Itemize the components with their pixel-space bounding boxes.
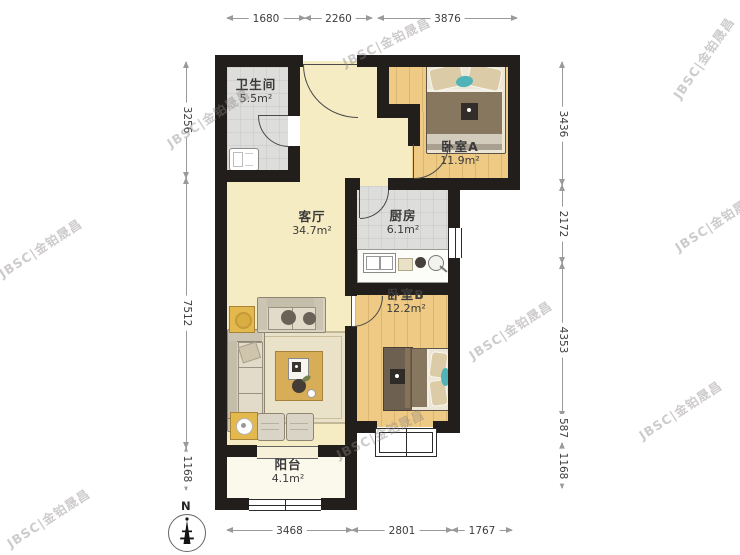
- watermark: JBSC|金铂晟昌: [668, 13, 739, 102]
- room-name: 客厅: [292, 210, 332, 224]
- kitchen-counter: [357, 249, 450, 283]
- seat-cushion: [238, 367, 263, 395]
- living-room-label: 客厅 34.7m²: [292, 210, 332, 238]
- bay-window: [375, 428, 437, 457]
- room-area: 11.9m²: [440, 155, 480, 168]
- dim-left-3: 1168: [180, 448, 193, 490]
- dim-top-3: 3876: [378, 12, 517, 25]
- watermark: JBSC|金铂晟昌: [635, 375, 726, 443]
- wall-segment: [448, 295, 460, 433]
- room-area: 5.5m²: [236, 93, 277, 106]
- wall-segment: [318, 445, 357, 457]
- bathtub: [229, 148, 259, 171]
- wardrobe: [383, 347, 413, 411]
- cutting-board: [398, 258, 413, 271]
- compass-north-label: N: [181, 499, 191, 513]
- room-name: 卧室A: [440, 140, 480, 154]
- bedroom-a-label: 卧室A 11.9m²: [440, 140, 480, 168]
- dim-bottom-2: 2801: [352, 524, 452, 537]
- room-name: 卫生间: [236, 78, 277, 92]
- dim-bottom-1: 3468: [227, 524, 352, 537]
- kitchen-label: 厨房 6.1m²: [387, 209, 420, 237]
- watermark: JBSC|金铂晟昌: [0, 213, 85, 281]
- watermark: JBSC|金铂晟昌: [671, 187, 740, 255]
- wall-segment: [215, 498, 249, 510]
- room-area: 6.1m²: [387, 224, 420, 237]
- stool: [286, 413, 314, 441]
- wall-segment: [288, 55, 300, 116]
- bedroom-a-door-leaf: [413, 144, 414, 178]
- coffee-table: [275, 351, 323, 401]
- wall-segment: [215, 445, 257, 457]
- watermark: JBSC|金铂晟昌: [465, 295, 556, 363]
- loveseat: [257, 297, 326, 333]
- dim-right-1: 3436: [556, 62, 569, 185]
- balcony-label: 阳台 4.1m²: [272, 458, 305, 486]
- tower-icon: [169, 515, 205, 551]
- room-area: 12.2m²: [386, 303, 426, 316]
- entry-door-leaf: [303, 64, 357, 65]
- floorplan: 卫生间 5.5m² 卧室A 11.9m² 客厅 34.7m² 厨房 6.1m² …: [0, 0, 740, 555]
- dim-right-3: 4353: [556, 263, 569, 417]
- side-table: [229, 306, 255, 333]
- dim-left-2: 7512: [180, 178, 193, 448]
- dim-top-2: 2260: [305, 12, 372, 25]
- dim-right-5: 1168: [556, 443, 569, 488]
- wall-segment: [448, 183, 460, 228]
- room-area: 4.1m²: [272, 473, 305, 486]
- wall-segment: [508, 55, 520, 190]
- balcony-window: [249, 499, 321, 511]
- watermark: JBSC|金铂晟昌: [3, 483, 94, 551]
- wall-segment: [345, 178, 357, 296]
- wall-segment: [408, 112, 420, 146]
- stool: [257, 413, 285, 441]
- kitchen-door-leaf: [359, 190, 360, 218]
- room-name: 阳台: [272, 458, 305, 472]
- kitchen-window: [448, 228, 462, 258]
- wall-segment: [215, 55, 227, 510]
- room-name: 厨房: [387, 209, 420, 223]
- wall-segment: [321, 498, 357, 510]
- room-area: 34.7m²: [292, 225, 332, 238]
- stove-burner: [415, 257, 426, 268]
- cup: [307, 389, 316, 398]
- dim-bottom-3: 1767: [452, 524, 512, 537]
- dim-top-1: 1680: [227, 12, 305, 25]
- blanket: [412, 349, 429, 407]
- compass-rose: [168, 514, 206, 552]
- side-table-lamp: [230, 412, 258, 440]
- round-pillow: [303, 312, 316, 325]
- bed-b: [411, 348, 453, 411]
- wall-segment: [345, 421, 377, 433]
- wall-segment: [433, 421, 460, 433]
- dim-right-4: 587: [556, 417, 569, 439]
- round-pillow: [281, 310, 296, 325]
- bedroom-b-door-leaf: [351, 296, 352, 326]
- wall-segment: [345, 326, 357, 510]
- dim-left-1: 3256: [180, 62, 193, 178]
- dim-right-2: 2172: [556, 185, 569, 263]
- room-name: 卧室B: [386, 288, 426, 302]
- bedroom-b-label: 卧室B 12.2m²: [386, 288, 426, 316]
- wall-segment: [215, 170, 300, 182]
- bathroom-label: 卫生间 5.5m²: [236, 78, 277, 106]
- bathroom-door-leaf: [258, 115, 288, 116]
